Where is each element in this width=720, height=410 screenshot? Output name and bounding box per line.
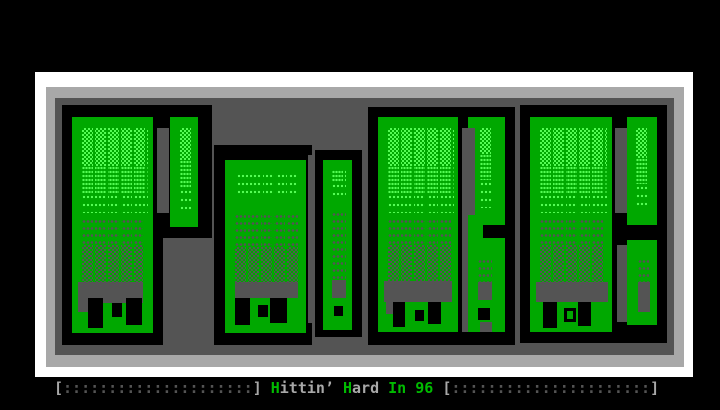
texture-shadow [332, 211, 346, 281]
letter-p-bowl-fill [170, 117, 198, 227]
caption-word: ittin’ [280, 379, 334, 397]
letter-o-body [214, 145, 312, 345]
texture-shadow [540, 218, 605, 282]
caption-space [433, 379, 442, 397]
letter-o-bar [315, 150, 362, 337]
texture-sparse [332, 211, 346, 281]
texture-medium [332, 170, 346, 182]
shadow-band [536, 282, 608, 302]
texture-dense [82, 245, 143, 282]
texture-sparse [235, 213, 298, 247]
texture-shadow [478, 258, 492, 282]
shadow-blob [638, 282, 650, 312]
drip [258, 305, 268, 317]
letter-r-gap-strip [462, 215, 468, 332]
texture-sparse [82, 193, 148, 213]
shadow-tab [386, 302, 393, 314]
drip-hole [567, 311, 573, 319]
texture-dense [540, 128, 607, 166]
drip [478, 308, 490, 320]
letter-o-body-fill [225, 160, 306, 333]
texture-sparse [540, 193, 607, 213]
drip [126, 298, 142, 325]
texture-medium [82, 166, 148, 193]
texture-shadow [638, 258, 650, 282]
ansi-art-screen: [:::::::::::::::::::::] Hittin’ Hard In … [0, 0, 720, 410]
shadow-band [384, 281, 452, 302]
letter-r-stem [368, 107, 468, 345]
letter-k-arm-bottom-fill [627, 240, 657, 325]
caption-bracket: ] [650, 379, 659, 397]
shadow-foot [480, 322, 492, 332]
drip [270, 298, 287, 323]
texture-shadow [235, 213, 298, 282]
texture-sparse [480, 180, 492, 208]
letter-k-counter [615, 128, 627, 213]
texture-medium [540, 166, 607, 193]
drip [88, 298, 103, 328]
texture-highlight [180, 128, 191, 213]
texture-sparse [388, 218, 452, 245]
texture-sparse [388, 193, 454, 213]
texture-sparse [82, 218, 143, 245]
drip [334, 306, 343, 316]
letter-r-notch [483, 225, 515, 238]
caption-bracket: ] [253, 379, 262, 397]
texture-dense [82, 128, 148, 166]
texture-medium [636, 158, 648, 184]
caption-accent: 96 [415, 379, 433, 397]
texture-sparse [332, 182, 346, 196]
caption: [:::::::::::::::::::::] Hittin’ Hard In … [54, 378, 659, 398]
letter-p-stem [62, 105, 163, 345]
caption-accent: H [271, 379, 280, 397]
texture-highlight [82, 128, 148, 213]
texture-dense [540, 245, 605, 282]
texture-dense [480, 128, 492, 154]
drip [543, 302, 557, 328]
texture-medium [180, 160, 191, 188]
drip [578, 302, 591, 326]
texture-highlight [480, 128, 492, 208]
texture-highlight [332, 170, 346, 196]
caption-space [379, 379, 388, 397]
letter-k-arm-top-fill [627, 117, 657, 225]
caption-space [406, 379, 415, 397]
texture-sparse [237, 172, 297, 196]
shadow-blob [332, 280, 346, 298]
letter-r-counter [462, 128, 475, 215]
texture-shadow [82, 218, 143, 282]
texture-dense [180, 128, 191, 160]
texture-highlight [540, 128, 607, 213]
texture-medium [480, 154, 492, 180]
texture-highlight [388, 128, 454, 213]
letter-p-stem-fill [72, 117, 153, 333]
texture-highlight [237, 172, 297, 196]
texture-dense [388, 245, 452, 282]
shadow-band [235, 282, 298, 298]
caption-accent: H [343, 379, 352, 397]
letter-o-bar-fill [323, 160, 352, 330]
shadow-tab [78, 298, 88, 312]
letter-k-gap-strip [617, 245, 627, 322]
caption-space [334, 379, 343, 397]
caption-dots: :::::::::::::::::::::: [451, 379, 650, 397]
caption-accent: In [388, 379, 406, 397]
drip [428, 302, 441, 324]
texture-medium [388, 166, 454, 193]
letter-r-stem-fill [378, 117, 458, 332]
drip [415, 310, 424, 321]
caption-space [262, 379, 271, 397]
shadow-blob [478, 282, 492, 300]
texture-highlight [636, 128, 648, 210]
texture-sparse [180, 188, 191, 213]
drip [112, 303, 122, 317]
drip [235, 298, 250, 325]
drip [393, 302, 405, 327]
texture-dense [388, 128, 454, 166]
texture-sparse [636, 184, 648, 210]
caption-bracket: [ [54, 379, 63, 397]
texture-dense [235, 247, 298, 282]
letter-k-stem-fill [530, 117, 612, 332]
texture-sparse [540, 218, 605, 245]
texture-dense [636, 128, 648, 158]
caption-dots: ::::::::::::::::::::: [63, 379, 253, 397]
caption-word: ard [352, 379, 379, 397]
letter-p-counter [157, 128, 169, 213]
letter-o-gap-strip [308, 155, 313, 323]
texture-shadow [388, 218, 452, 282]
letter-k-stem [520, 105, 620, 343]
